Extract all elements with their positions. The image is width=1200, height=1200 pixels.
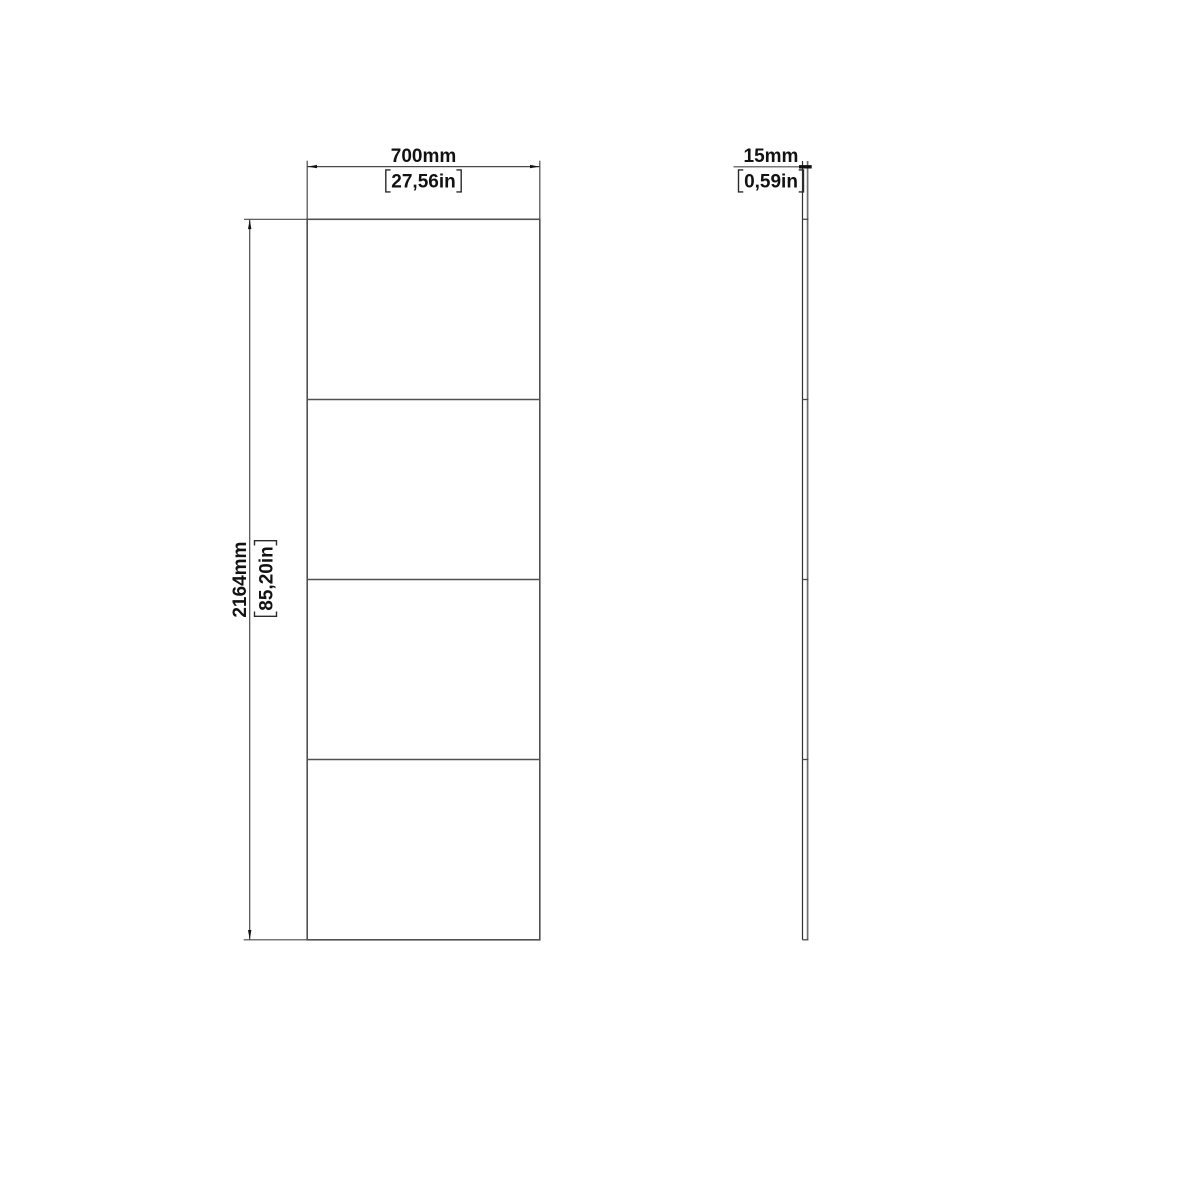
svg-text:15mm: 15mm [744,146,799,167]
svg-text:0,59in: 0,59in [744,172,798,193]
svg-text:700mm: 700mm [391,146,457,167]
svg-text:85,20in: 85,20in [256,546,277,610]
svg-text:27,56in: 27,56in [391,172,455,193]
svg-text:2164mm: 2164mm [230,542,251,618]
